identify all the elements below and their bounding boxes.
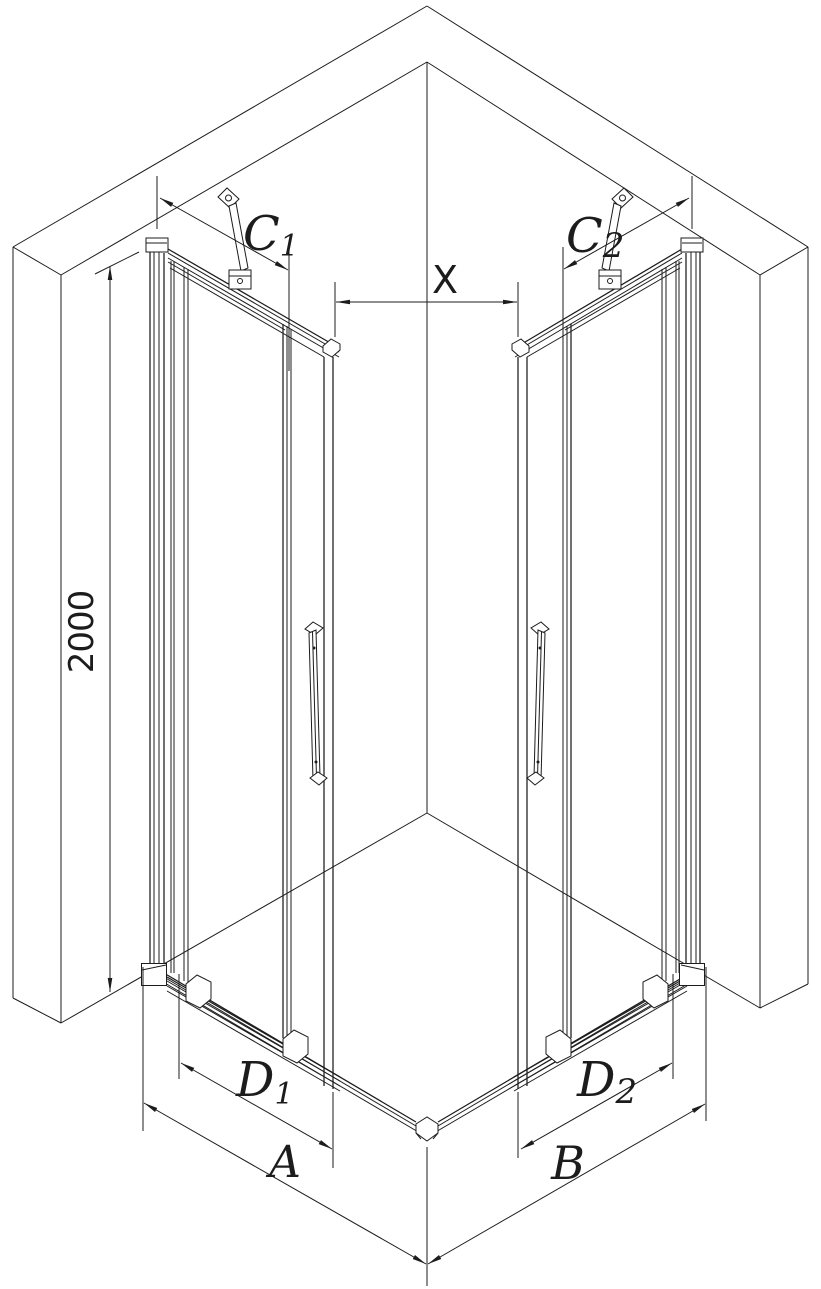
label-d1: D1 (235, 1052, 294, 1112)
right-door-assembly (512, 188, 705, 1091)
label-b: B (550, 1136, 585, 1190)
label-height-2000: 2000 (62, 591, 102, 674)
dimension-a: A (143, 967, 427, 1286)
dimension-c2: C2 (563, 176, 692, 371)
shower-enclosure-diagram: 2000 C1 C2 X D1 (0, 0, 821, 1289)
left-wall-profile-bottom-cap (142, 964, 167, 986)
room-walls (13, 6, 808, 1023)
right-wall-profile-bottom-cap (680, 964, 705, 986)
left-door-assembly (142, 188, 341, 1091)
technical-drawing-page: 2000 C1 C2 X D1 (0, 0, 821, 1289)
left-wall-base-line (61, 813, 427, 1023)
right-wall-profile-top-cap (681, 238, 703, 252)
label-x: X (432, 258, 458, 302)
left-top-rail-end-cap (323, 339, 340, 357)
right-wall-base-line (427, 813, 760, 1008)
label-c1: C1 (243, 206, 299, 264)
left-wall-profile-top-cap (146, 238, 168, 252)
right-door-handle[interactable] (527, 622, 549, 785)
shower-tray (152, 966, 702, 1141)
label-d2: D2 (576, 1052, 637, 1112)
label-a: A (265, 1137, 301, 1188)
dimension-height-2000: 2000 (62, 252, 139, 992)
